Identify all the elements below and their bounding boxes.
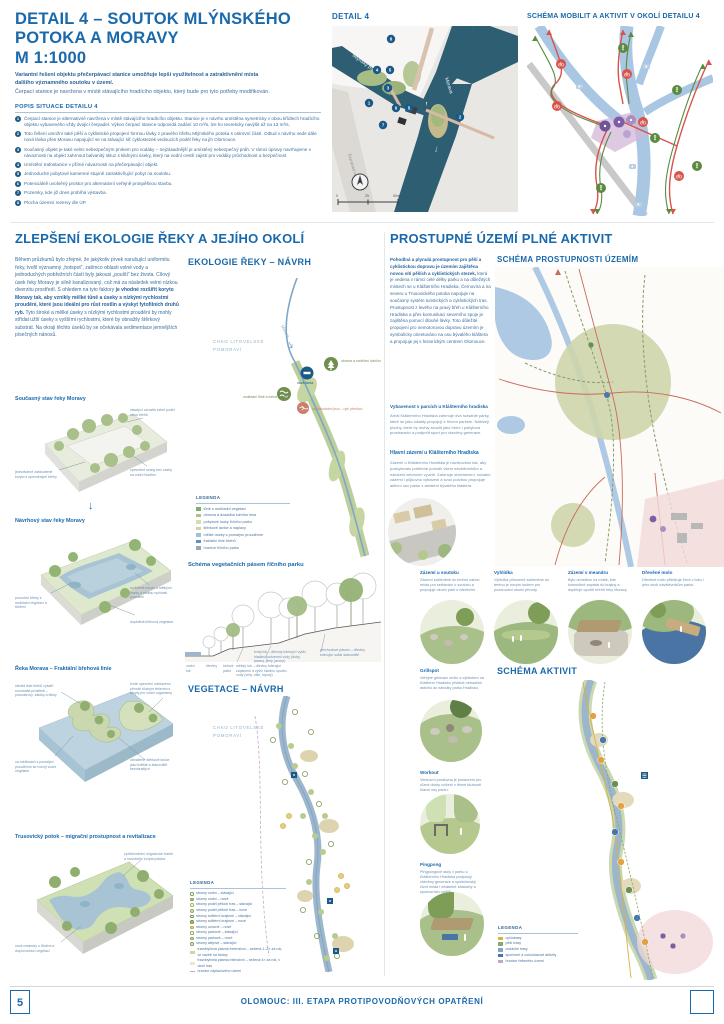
scale-0: 0 (336, 194, 338, 198)
diagram2-title: Návrhový stav řeky Moravy (15, 518, 85, 524)
fire-pit (446, 724, 454, 732)
item-number-badge: 2 (15, 131, 21, 137)
list-item: 4Umístění trafostanice v přímé návaznost… (15, 162, 323, 168)
pool (69, 582, 81, 589)
water-level (185, 652, 201, 656)
ecology-section-title: ZLEPŠENÍ EKOLOGIE ŘEKY A JEJÍHO OKOLÍ (15, 231, 304, 246)
tree-canopy (454, 794, 478, 822)
vignette-text: Vyhlídka přirozeně začleněná do terénu j… (494, 578, 556, 593)
main-base-vignette (388, 498, 456, 566)
activities-map-title: SCHÉMA AKTIVIT (497, 666, 577, 676)
legend-swatch (196, 527, 201, 531)
legend-swatch (498, 954, 503, 958)
veg-zone-label: dřeviny (206, 664, 217, 673)
item-number-badge: 8 (15, 200, 21, 206)
legend-swatch (190, 915, 194, 919)
legend-swatch (196, 540, 201, 544)
list-title-rule (15, 112, 321, 113)
vegetation-map-title: VEGETACE – NÁVRH (188, 684, 284, 694)
vignette-title: Zázemí u soutoku (420, 570, 482, 575)
vignette-grillspot (420, 700, 482, 762)
item-text: Jednoduché pobytové kamenné stupně zatra… (24, 171, 171, 177)
activity-dot (650, 516, 657, 523)
intro-lead: Čerpací stanice je navržena v místě stáv… (15, 89, 277, 97)
node-dot (588, 342, 593, 347)
list-item: 5Jednoduché pobytové kamenné stupně zatr… (15, 171, 323, 177)
diagram3-annotation: obnažené štěrkové lavice jako trdliště a… (130, 758, 176, 772)
list-item: 3Současný objekt je také velmi nebezpečn… (15, 147, 323, 159)
vignette-text: Zázemí začleněné do terénu nabízí místa … (420, 578, 482, 593)
vignette-meander-base (568, 600, 632, 664)
diagram2-annotation: rozšířené koryto s mělkými úseky a nízko… (130, 586, 176, 600)
item-number-badge: 7 (15, 190, 21, 196)
river-label: Morava (280, 324, 291, 339)
page-title: DETAIL 4 – SOUTOK MLÝNSKÉHO POTOKA A MOR… (15, 10, 335, 68)
legend-swatch (190, 892, 194, 896)
legend-title: LEGENDA (498, 924, 578, 934)
shelter-roof (576, 620, 622, 632)
ecology-paragraph-p2: Tyto široké a mělké úseky s nízkými rych… (15, 310, 177, 339)
legend-item: travobylinná pásma intenzivní – sečená 4… (190, 958, 286, 969)
hill-terrace (502, 630, 550, 640)
diagram1-annotation: stávající vzrostlá zeleň podél obou břeh… (130, 408, 176, 417)
badge-fishpass-label: zprůchodnění jezu – rybí přechod (312, 407, 362, 411)
legend-swatch (190, 937, 194, 941)
bench (590, 640, 602, 646)
legend-title: LEGENDA (196, 494, 290, 504)
veg-section-title: Schéma vegetačních pásem říčního parku (188, 562, 304, 568)
item-number-badge: 1 (15, 116, 21, 122)
stone (444, 640, 453, 646)
shelter-roof (430, 918, 473, 930)
list-item: 7Pozemky, kde již dnes probíhá výstavba. (15, 190, 323, 196)
legend-swatch (190, 926, 194, 930)
stone (430, 634, 438, 640)
vignette-wooden-pier (642, 600, 706, 664)
detail-map: Mlýnský potok ⟶ Morava ⟶ Švýcarské nábře… (332, 26, 518, 212)
legend-swatch (196, 533, 201, 537)
ground (420, 818, 480, 854)
item-number-badge: 5 (15, 171, 21, 177)
veg-annotation-tvrdy: tvrdý luh – dřeviny tolerující vyšší hla… (254, 650, 308, 664)
poster-page: DETAIL 4 – SOUTOK MLÝNSKÉHO POTOKA A MOR… (0, 0, 724, 1024)
pingpong-table (442, 934, 458, 940)
legend-swatch (498, 960, 503, 964)
down-arrow-icon: ↓ (88, 500, 94, 512)
item-text: Čerpací stanice je alternativně navržena… (24, 116, 323, 128)
vegetation-legend: LEGENDA stromy vodní – stávající stromy … (190, 880, 286, 975)
pool (114, 883, 124, 889)
page-title-scale: M 1:1000 (15, 49, 335, 68)
legend-swatch (190, 951, 195, 955)
list-item: 6Potenciálně uvolněný prostor pro altern… (15, 181, 323, 187)
tree (528, 602, 550, 624)
vignette-confluence (420, 600, 484, 664)
building (393, 510, 411, 523)
scale-25: 25 (365, 194, 369, 198)
mobility-map-title: SCHÉMA MOBILIT A AKTIVIT V OKOLÍ DETAILU… (527, 13, 700, 20)
tree (438, 544, 452, 558)
stone-seat (430, 728, 440, 735)
diagram2-annotation: pozvolné břehy s mokřadní vegetací a tůn… (15, 596, 57, 610)
item-text: Současný objekt je také velmi nebezpečný… (24, 147, 323, 159)
stone-seat (448, 736, 458, 743)
north-compass (352, 174, 368, 190)
building (413, 504, 433, 519)
pond (497, 416, 525, 434)
badge-wetland-label: mokřadní tůně a mrtvá ramena (243, 395, 289, 399)
veg-annotation-mekky: měkký luh – dřeviny tolerující zaplavení… (236, 664, 288, 678)
scale-50: 50m (393, 194, 400, 198)
diagram-current-state (15, 404, 177, 498)
legend-label: travobylinná pásma extenzivní – sečená 1… (198, 947, 287, 958)
facilities-text: Areál Klášterního Hradiska zahrnuje dva … (390, 413, 491, 436)
badge-forest-label: obnova a rozšíření lužního lesa (341, 359, 381, 363)
river (282, 696, 329, 972)
footer-rule (10, 986, 714, 987)
badge-bridge-node (301, 367, 314, 380)
equipment-bar (434, 824, 448, 826)
tree (456, 608, 474, 626)
legend-item: hranice říčního parku (196, 545, 290, 551)
footer-logo-box (690, 990, 714, 1014)
legend-swatch (498, 937, 503, 941)
vignette-text: Dřevěné molo přibližuje život v toku i j… (642, 578, 706, 588)
legend-swatch (196, 514, 201, 518)
section-divider (10, 222, 714, 223)
vignette-viewpoint (494, 600, 558, 664)
list-item: 1Čerpací stanice je alternativně navržen… (15, 116, 323, 128)
permeability-map (495, 267, 724, 567)
legend-label: hranice řešeného území (506, 959, 545, 965)
diagram4-title: Trusovický potok – migrační prostupnost … (15, 834, 156, 840)
facilities-subtitle: Vybavenost v parcích u Klášterního hradi… (390, 404, 492, 409)
veg-zone-labels: vodní tok dřeviny keřové patro (186, 664, 242, 673)
permeability-paragraph: Pohodlná a plynulá prostupnost pro pěší … (390, 257, 491, 346)
stone-seat (462, 726, 472, 733)
badge-node-label: nová lávka (297, 381, 313, 385)
legend-label: travobylinná pásma intenzivní – sečená 4… (198, 958, 287, 969)
permeability-paragraph-text: která je vedena v rámci celé délky parku… (390, 271, 491, 344)
column-divider (384, 232, 385, 976)
badge-fishpass (297, 402, 309, 414)
activity-text: Venkovní posilovna je prostorem pro různ… (420, 778, 484, 793)
legend-label: hranice záplavového území (198, 969, 242, 975)
ecology-map-legend: LEGENDA tůně s mokřadní vegetací obnova … (196, 494, 290, 551)
ecology-paragraph: Během průzkumů bylo zřejmé, že jakýkoliv… (15, 257, 179, 340)
legend-swatch (498, 948, 503, 952)
legend-title: LEGENDA (190, 880, 286, 889)
main-base-subtitle: Hlavní zázemí u Klášterního Hradiska (390, 450, 492, 456)
legend-swatch (196, 546, 201, 550)
page-title-line2: POTOKA A MORAVY (15, 29, 335, 48)
diagram3-title: Řeka Morava – Fraktální břehová linie (15, 666, 111, 672)
diagram-proposed-state (15, 527, 177, 635)
activities-legend: LEGENDA cyklotrasy pěší trasy vodácké tr… (498, 924, 578, 964)
vignette-pingpong (420, 892, 484, 956)
pool (80, 901, 90, 907)
chko-label: CHKO LITOVELSKÉ POMORAVÍ (213, 338, 273, 354)
item-number-badge: 6 (15, 181, 21, 187)
river-line (286, 278, 365, 556)
legend-swatch (190, 931, 194, 935)
vignette-title: Dřevěné molo (642, 570, 706, 575)
legend-swatch (190, 971, 195, 972)
mobility-map (527, 26, 713, 216)
diagram4-annotation: nové meandry s tůněmi a doprovodnou vege… (15, 944, 67, 953)
legend-swatch (190, 909, 194, 913)
tree (390, 542, 402, 554)
veg-annotation-prechod: přechodové pásmo – dřeviny tolerující su… (320, 648, 374, 657)
veg-zone-label: vodní tok (186, 664, 200, 673)
legend-swatch (190, 962, 195, 966)
tree (650, 602, 666, 618)
legend-swatch (190, 898, 194, 902)
item-text: Umístění trafostanice v přímé návaznosti… (24, 162, 159, 168)
stone (460, 634, 468, 640)
diagram3-annotation: na mělčinách s pomalým prouděním se rozv… (15, 760, 57, 774)
legend-swatch (190, 920, 194, 924)
activity-title: Pingpong (420, 862, 484, 867)
vignette-workout (420, 794, 480, 854)
vignette-title: Zázemí v meandru (568, 570, 630, 575)
detail-map-title: DETAIL 4 (332, 12, 369, 21)
legend-swatch (190, 903, 194, 907)
item-number-badge: 4 (15, 162, 21, 168)
legend-item: hranice záplavového území (190, 969, 286, 975)
legend-item: travobylinná pásma extenzivní – sečená 1… (190, 947, 286, 958)
activity-text: Veřejné grilovací místo s výhledem na Kl… (420, 676, 484, 691)
ground (420, 910, 484, 956)
permeability-paragraph-bold: Pohodlná a plynulá prostupnost pro pěší … (390, 257, 481, 276)
activity-title: Workout (420, 770, 484, 775)
activity-title: Grillspot (420, 668, 484, 673)
diagram4-annotation: zprůchodnění migračních bariér a rozvoln… (124, 852, 174, 861)
list-item: 2Toto řešení umožní také pěší a cyklisti… (15, 131, 323, 143)
page-title-line1: DETAIL 4 – SOUTOK MLÝNSKÉHO (15, 10, 335, 29)
situation-list: 1Čerpací stanice je alternativně navržen… (15, 116, 323, 209)
vignette-text: Bylo umístěno na místě, kde komunitně za… (568, 578, 630, 593)
permeability-map-title: SCHÉMA PROSTUPNOSTI ÚZEMÍM (497, 255, 638, 264)
intro-lead-bold: Variantní řešení objektu přečerpávací st… (15, 72, 277, 88)
legend-swatch (196, 507, 201, 511)
tree-canopy (426, 794, 446, 822)
activity-dot (660, 526, 666, 532)
main-base-text: Zázemí u Klášterního Hradiska je navrhov… (390, 460, 491, 489)
legend-label: hranice říčního parku (204, 545, 240, 551)
node-dot (604, 392, 610, 398)
tree-canopy (428, 892, 454, 918)
item-text: Plocha územní rezervy dle ÚP. (24, 200, 86, 206)
diagram1-annotation: jednotvárné zahloubené koryto s opevněný… (15, 470, 57, 479)
item-number-badge: 3 (15, 147, 21, 153)
park-area-south (551, 503, 595, 547)
legend-item: hranice řešeného území (498, 959, 578, 965)
situation-list-title: POPIS SITUACE DETAILU 4 (15, 104, 98, 110)
hill (494, 622, 558, 664)
diagram1-annotation: zpevněné svahy bez vazby na vodní hladin… (130, 468, 176, 477)
legend-swatch (190, 942, 194, 946)
vignette-title: Vyhlídka (494, 570, 556, 575)
pool (126, 564, 136, 570)
diagram1-title: Současný stav řeky Moravy (15, 396, 86, 402)
legend-swatch (196, 520, 201, 524)
item-text: Potenciálně uvolněný prostor pro alterna… (24, 181, 173, 187)
permeability-section-title: PROSTUPNÉ ÚZEMÍ PLNÉ AKTIVIT (390, 231, 613, 246)
legend-swatch (498, 942, 503, 946)
diagram2-annotation: doplněná břehová vegetace (130, 620, 176, 625)
tree (418, 550, 428, 560)
ecology-map-title: EKOLOGIE ŘEKY – NÁVRH (188, 257, 311, 267)
item-text: Toto řešení umožní také pěší a cyklistic… (24, 131, 323, 143)
diagram3-annotation: členitá linie břehů vytváří rozmanitá pr… (15, 684, 57, 698)
item-text: Pozemky, kde již dnes probíhá výstavba. (24, 190, 107, 196)
footer-title: OLOMOUC: III. ETAPA PROTIPOVODŇOVÝCH OPA… (0, 997, 724, 1006)
diagram3-annotation: tvrdé opevnění nahrazeno přírodě blízkým… (130, 682, 176, 696)
badge-forest (324, 357, 338, 371)
hill (420, 626, 484, 664)
list-item: 8Plocha územní rezervy dle ÚP. (15, 200, 323, 206)
